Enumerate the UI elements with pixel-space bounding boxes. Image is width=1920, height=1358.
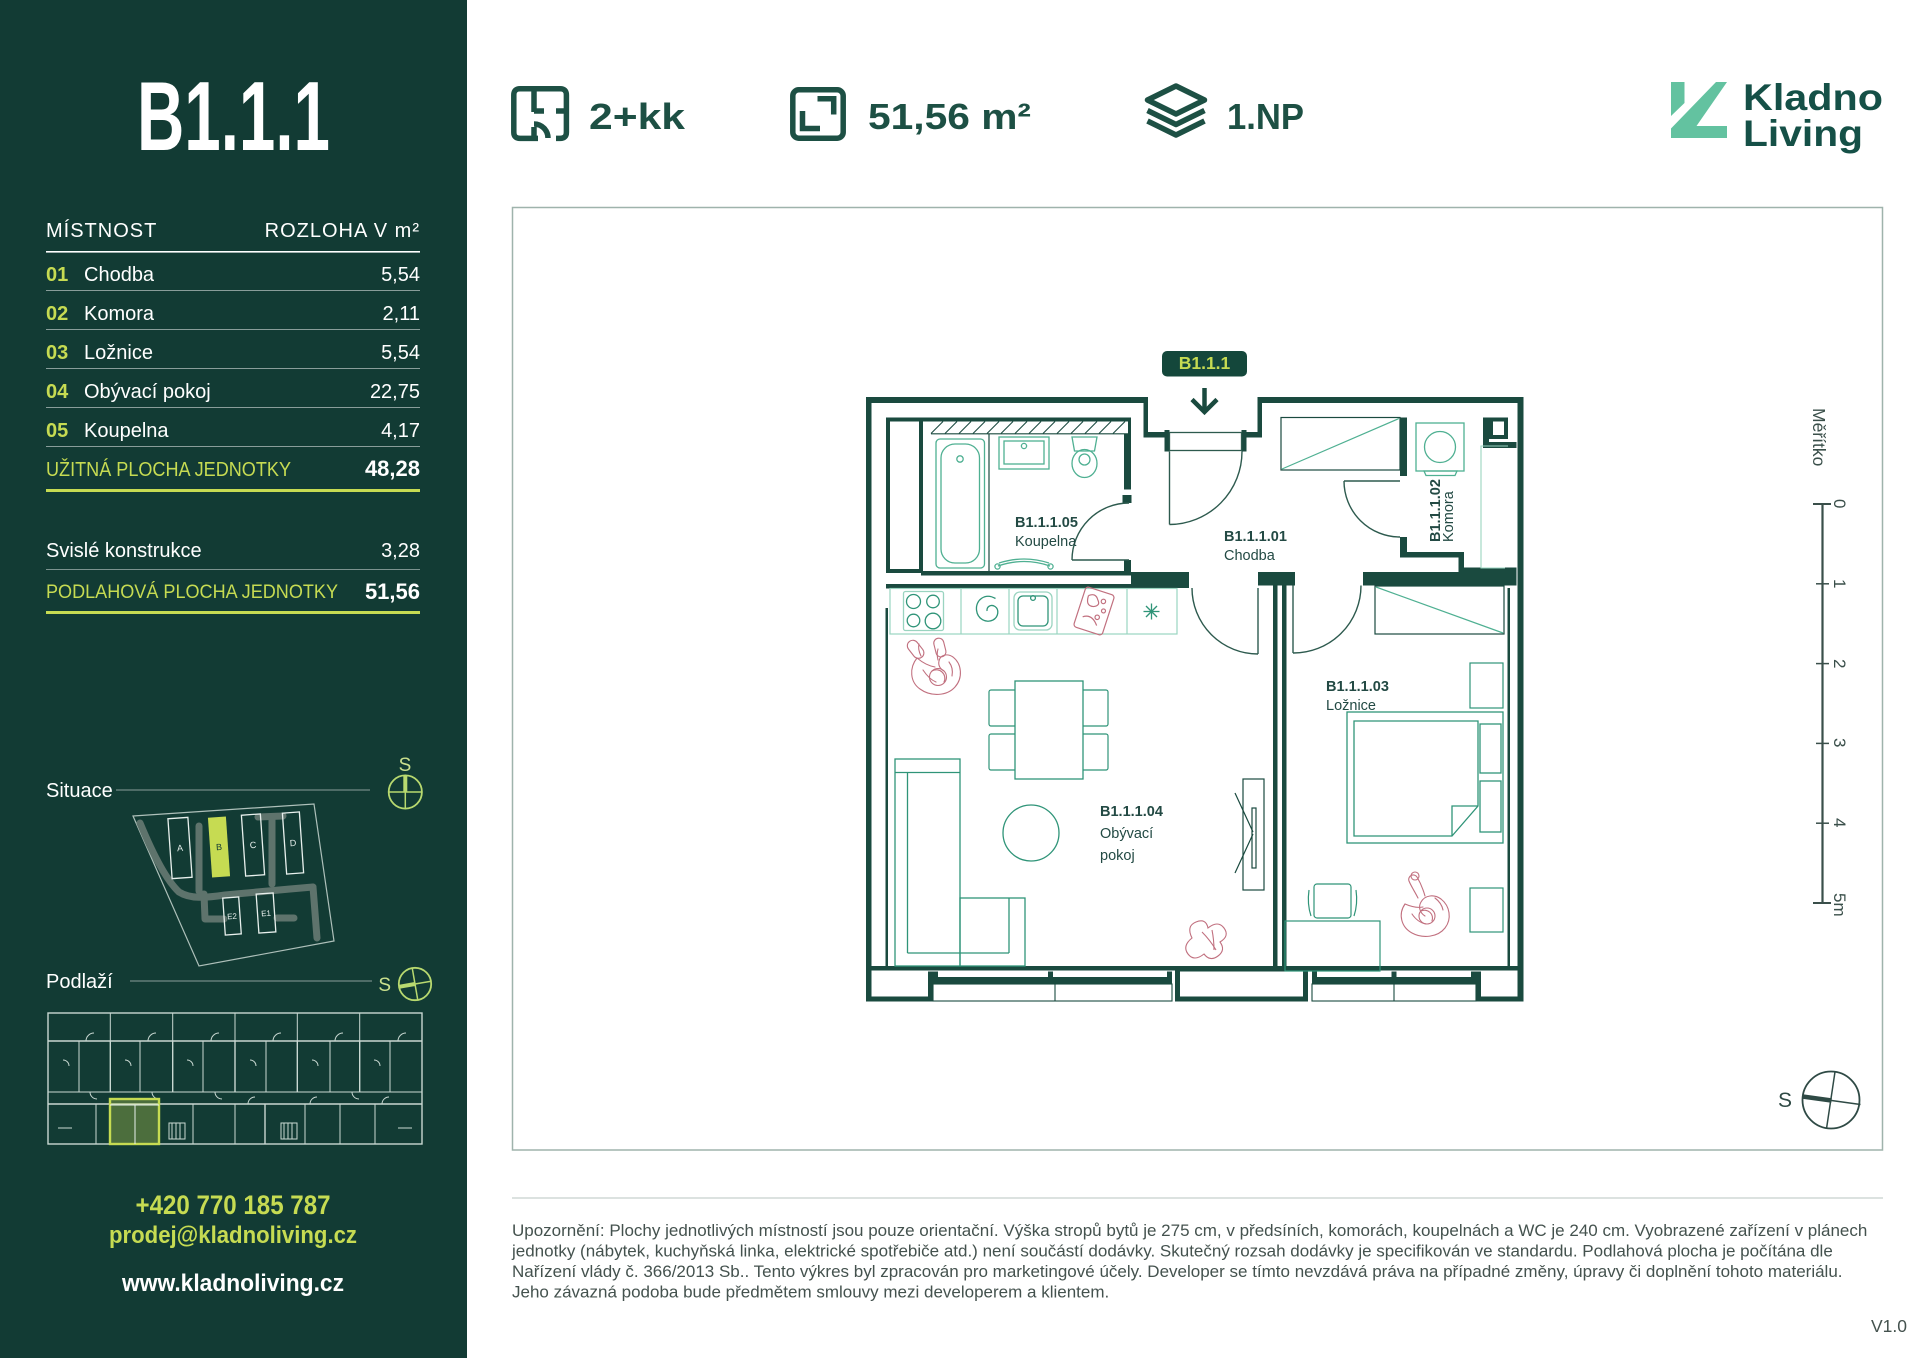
svg-text:ROZLOHA V m²: ROZLOHA V m²	[265, 220, 420, 242]
svg-text:1: 1	[1830, 579, 1849, 588]
svg-text:Upozornění: Plochy jednotlivýc: Upozornění: Plochy jednotlivých místnost…	[512, 1221, 1867, 1240]
svg-text:Komora: Komora	[1441, 490, 1457, 542]
svg-text:B1.1.1: B1.1.1	[137, 61, 330, 171]
svg-text:B: B	[216, 842, 223, 852]
svg-text:3: 3	[1830, 738, 1849, 747]
svg-text:51,56: 51,56	[365, 579, 420, 604]
svg-text:Kladno: Kladno	[1743, 77, 1883, 118]
svg-text:jednotky (nábytek, kuchyňská l: jednotky (nábytek, kuchyňská linka, elek…	[511, 1242, 1833, 1261]
svg-text:4,17: 4,17	[381, 420, 420, 442]
svg-text:22,75: 22,75	[370, 381, 420, 403]
svg-text:Jeho závazná podoba bude předm: Jeho závazná podoba bude předmětem smlou…	[512, 1283, 1109, 1302]
svg-text:V1.0: V1.0	[1871, 1316, 1907, 1336]
svg-text:0: 0	[1830, 499, 1849, 508]
svg-text:Ložnice: Ložnice	[1326, 698, 1376, 714]
svg-text:D: D	[289, 838, 297, 848]
svg-text:B1.1.1.04: B1.1.1.04	[1100, 804, 1163, 820]
svg-text:Podlaží: Podlaží	[46, 971, 113, 993]
svg-text:4: 4	[1830, 818, 1849, 827]
svg-text:Koupelna: Koupelna	[84, 420, 169, 442]
svg-text:5,54: 5,54	[381, 264, 420, 286]
svg-text:www.kladnoliving.cz: www.kladnoliving.cz	[121, 1270, 344, 1297]
svg-text:Obývací: Obývací	[1100, 826, 1153, 842]
svg-text:B1.1.1.05: B1.1.1.05	[1015, 515, 1078, 531]
svg-text:05: 05	[46, 420, 68, 442]
svg-text:S: S	[378, 975, 391, 996]
svg-text:Obývací pokoj: Obývací pokoj	[84, 381, 211, 403]
svg-text:2: 2	[1830, 659, 1849, 668]
svg-text:+420 770 185 787: +420 770 185 787	[136, 1190, 331, 1220]
svg-text:1.NP: 1.NP	[1227, 96, 1304, 137]
svg-text:5,54: 5,54	[381, 342, 420, 364]
svg-text:Ložnice: Ložnice	[84, 342, 153, 364]
svg-text:Nařízení vlády č. 366/2013 Sb.: Nařízení vlády č. 366/2013 Sb.. Tento vý…	[512, 1262, 1843, 1281]
svg-text:E1: E1	[261, 909, 272, 919]
svg-text:48,28: 48,28	[365, 456, 420, 481]
svg-text:Situace: Situace	[46, 780, 113, 802]
svg-text:PODLAHOVÁ PLOCHA JEDNOTKY: PODLAHOVÁ PLOCHA JEDNOTKY	[46, 582, 338, 603]
svg-text:Komora: Komora	[84, 303, 155, 325]
svg-text:S: S	[399, 755, 412, 776]
svg-text:5m: 5m	[1830, 893, 1849, 917]
svg-text:2,11: 2,11	[383, 303, 420, 325]
svg-text:prodej@kladnoliving.cz: prodej@kladnoliving.cz	[109, 1222, 357, 1249]
svg-text:S: S	[1778, 1089, 1792, 1112]
svg-text:03: 03	[46, 342, 68, 364]
svg-text:01: 01	[46, 264, 68, 286]
svg-text:Living: Living	[1743, 113, 1863, 154]
svg-text:51,56 m²: 51,56 m²	[868, 96, 1031, 137]
svg-text:Chodba: Chodba	[84, 264, 155, 286]
svg-text:02: 02	[46, 303, 68, 325]
svg-text:Svislé konstrukce: Svislé konstrukce	[46, 540, 202, 562]
svg-text:pokoj: pokoj	[1100, 848, 1135, 864]
svg-text:MÍSTNOST: MÍSTNOST	[46, 219, 157, 242]
svg-text:B1.1.1: B1.1.1	[1179, 353, 1231, 373]
svg-text:B1.1.1.03: B1.1.1.03	[1326, 679, 1389, 695]
svg-text:3,28: 3,28	[381, 540, 420, 562]
svg-text:E2: E2	[227, 912, 238, 922]
svg-text:C: C	[249, 840, 257, 850]
svg-text:Měřítko: Měřítko	[1809, 408, 1829, 466]
svg-text:Koupelna: Koupelna	[1015, 534, 1077, 550]
svg-text:A: A	[177, 843, 184, 853]
svg-text:UŽITNÁ PLOCHA JEDNOTKY: UŽITNÁ PLOCHA JEDNOTKY	[46, 458, 291, 481]
svg-text:2+kk: 2+kk	[589, 96, 686, 137]
svg-text:04: 04	[46, 381, 69, 403]
svg-text:B1.1.1.01: B1.1.1.01	[1224, 529, 1287, 545]
svg-text:Chodba: Chodba	[1224, 548, 1276, 564]
